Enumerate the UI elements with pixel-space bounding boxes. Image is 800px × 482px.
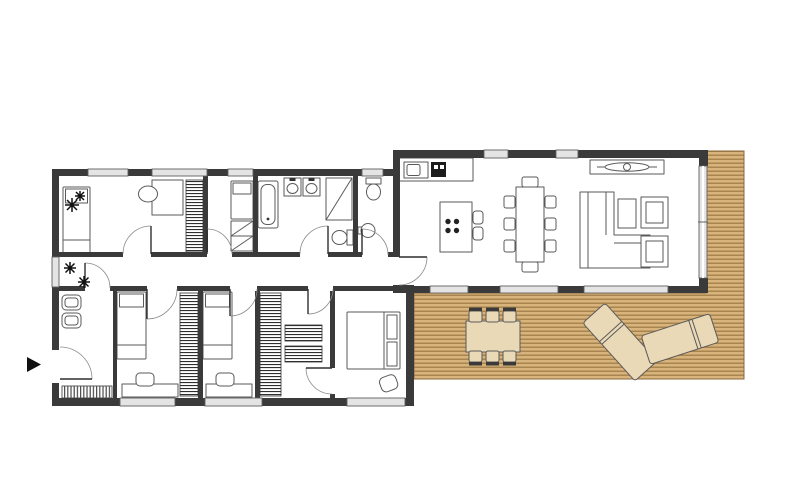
doormat [62, 386, 112, 398]
window [152, 169, 207, 176]
window [556, 150, 578, 158]
wardrobe-bedroom3 [180, 293, 198, 396]
wardrobe-closet-left [260, 293, 281, 396]
outdoor-chairs-top [469, 308, 516, 323]
bedroom2-cabinets [231, 221, 253, 251]
plant-icon [78, 276, 90, 288]
window [228, 169, 253, 176]
fireplace [590, 160, 664, 174]
window [205, 398, 262, 406]
plant-icon [64, 262, 76, 274]
window [347, 398, 405, 406]
window [120, 398, 175, 406]
wc-toilet [366, 178, 381, 200]
sliding-glass-door [430, 286, 468, 293]
bedroom3-bed [117, 292, 146, 359]
plant-icon [75, 191, 85, 201]
dining-table [516, 187, 544, 262]
master-bed [347, 312, 400, 369]
coffee-table [618, 199, 636, 228]
outdoor-table [466, 321, 520, 352]
bathroom-toilet [332, 230, 353, 245]
shower [326, 178, 352, 220]
bathtub [258, 181, 278, 228]
window [52, 257, 59, 287]
bedroom4-bed [203, 292, 232, 359]
outdoor-dining-table-set [466, 308, 520, 366]
kitchen-counter [399, 158, 473, 181]
window [88, 169, 128, 176]
bedroom2-bed [231, 181, 253, 219]
armchair-2 [641, 236, 668, 267]
bedroom1-bed [63, 187, 90, 253]
bar-stool [473, 211, 483, 224]
sliding-glass-door [584, 286, 668, 293]
wardrobe-closet-mid1 [285, 325, 322, 341]
window [484, 150, 508, 158]
armchair-1 [641, 197, 668, 228]
floor-plan-drawing [0, 0, 800, 482]
outdoor-chairs-bottom [469, 351, 516, 366]
wardrobe-bedroom1 [186, 180, 203, 252]
bar-stool [473, 227, 483, 240]
floor-plan-page [0, 0, 800, 482]
sliding-glass-door [500, 286, 558, 293]
wardrobe-closet-mid2 [285, 346, 322, 362]
window [362, 169, 383, 176]
